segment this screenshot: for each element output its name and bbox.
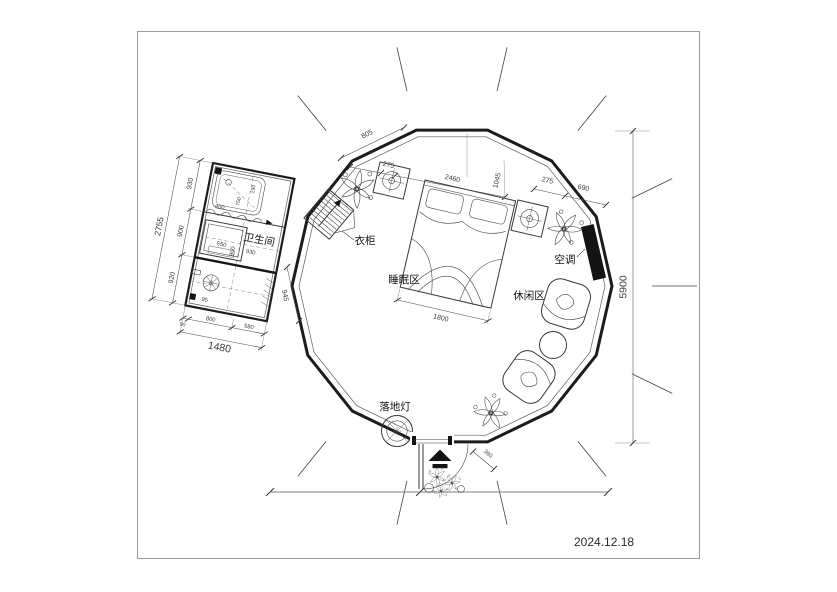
wardrobe-leader <box>342 231 354 240</box>
duvet-swag <box>418 212 505 238</box>
dim-275-right: 275 <box>541 176 554 185</box>
bed: 1800 <box>392 179 519 333</box>
plant-bottom <box>470 392 512 435</box>
dim-1800: 1800 <box>432 313 449 323</box>
plant-right <box>539 204 588 253</box>
dim-5900: 5900 <box>618 275 630 299</box>
dim-1480: 1480 <box>207 339 232 355</box>
dim-2460: 2460 <box>444 174 461 184</box>
dim-690: 690 <box>577 184 590 193</box>
dim-95: 95 <box>201 297 208 304</box>
dimension-ac-span: 275 690 <box>531 176 609 208</box>
armchair-bottom <box>498 346 560 409</box>
dim-920: 920 <box>168 271 177 284</box>
entry-arrow <box>429 450 452 469</box>
label-sleeping-area: 睡眠区 <box>388 273 420 286</box>
pillow-left <box>425 188 464 215</box>
ground-line <box>266 488 612 496</box>
floor-plan-drawing: 5900 1800 <box>0 0 837 592</box>
dimension-wall-segment: 805 <box>338 125 407 162</box>
label-wardrobe: 衣柜 <box>355 234 376 247</box>
dimension-door-offset: 360 <box>470 449 497 473</box>
floor-lamp-symbol <box>382 416 413 447</box>
dim-900: 900 <box>177 225 186 238</box>
dimension-tent-diameter: 5900 <box>615 128 650 446</box>
dim-360: 360 <box>482 449 493 460</box>
dim-2755: 2755 <box>152 216 165 237</box>
bathroom: 卫生间 930 900 550 400 750 190 95 930 900 9… <box>132 151 298 362</box>
dim-275-left: 275 <box>382 161 395 170</box>
air-conditioner-unit <box>581 224 606 281</box>
dim-805: 805 <box>361 129 375 140</box>
dim-945: 945 <box>280 289 289 302</box>
dimension-bed-head: 275 2460 1045 <box>347 133 508 200</box>
armchair-top <box>538 276 594 333</box>
coffee-table <box>540 332 567 359</box>
floor-plan-page: 5900 1800 <box>0 0 837 592</box>
label-leisure-area: 休闲区 <box>513 289 545 302</box>
entrance-plants <box>425 468 465 502</box>
dim-930: 930 <box>186 177 195 190</box>
pillow-right <box>469 198 508 225</box>
nightstand-right <box>511 200 548 237</box>
ac-leader <box>577 249 585 257</box>
dim-1045: 1045 <box>492 172 502 189</box>
label-air-conditioner: 空调 <box>555 253 576 266</box>
tent-guy-lines <box>298 47 697 524</box>
label-floor-lamp: 落地灯 <box>379 400 411 413</box>
dim-90: 90 <box>179 322 186 329</box>
drawing-date: 2024.12.18 <box>574 535 634 549</box>
